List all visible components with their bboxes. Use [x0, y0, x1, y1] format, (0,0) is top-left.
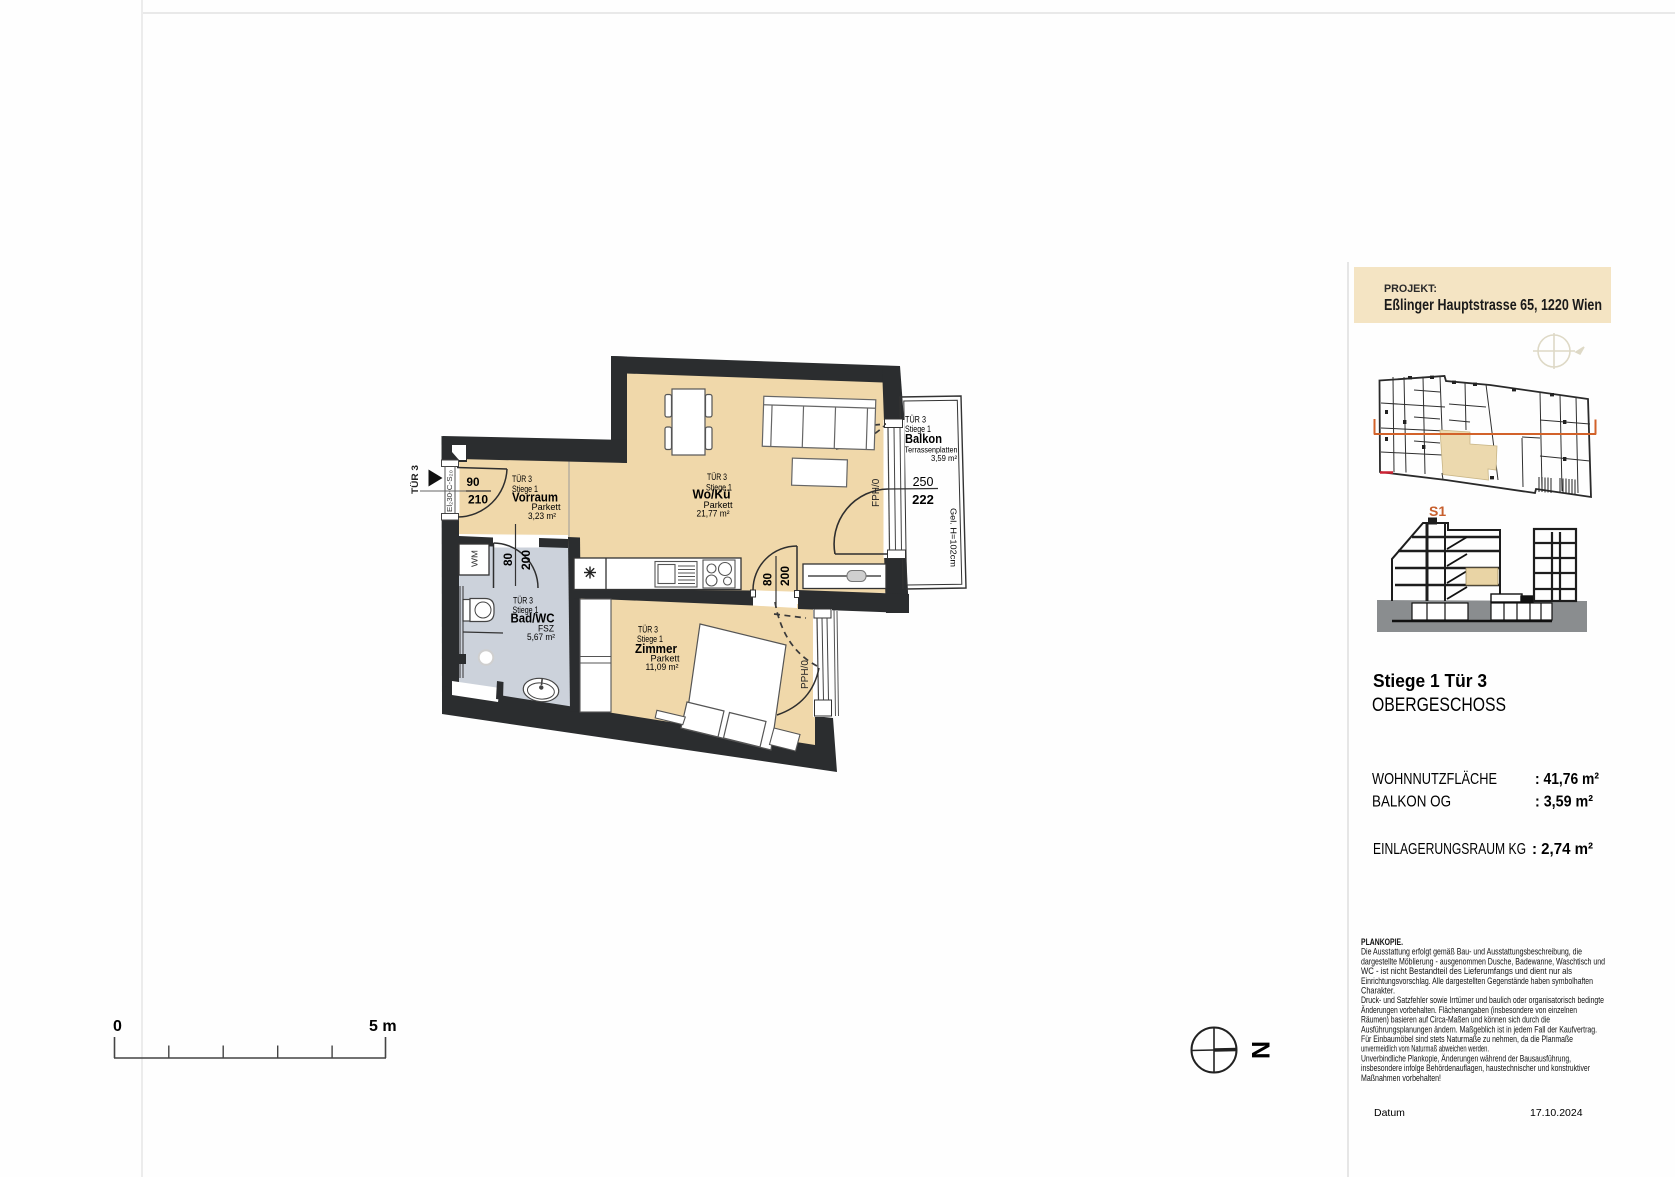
svg-text:210: 210 [468, 493, 488, 507]
svg-text:WC - ist nicht Bestandteil des: WC - ist nicht Bestandteil des Lieferumf… [1361, 966, 1572, 976]
svg-text:Stiege 1 Tür 3: Stiege 1 Tür 3 [1373, 670, 1487, 691]
svg-text:5,67 m²: 5,67 m² [527, 632, 555, 642]
svg-text:: 3,59 m²: : 3,59 m² [1535, 794, 1593, 811]
svg-text:90: 90 [467, 475, 480, 489]
svg-text:Maßnahmen vorbehalten!: Maßnahmen vorbehalten! [1361, 1073, 1441, 1083]
svg-text:Druck- und Satzfehler sowie Ir: Druck- und Satzfehler sowie Irrtümer und… [1361, 995, 1604, 1005]
svg-text:dargestellte Möblierung - ausg: dargestellte Möblierung - ausgenommen Du… [1361, 956, 1605, 966]
svg-text:unvermeidlich vom Naturmaß abw: unvermeidlich vom Naturmaß abweichen wer… [1361, 1044, 1489, 1054]
svg-text:80: 80 [501, 553, 515, 566]
svg-text:Einrichtungsvorschlag. Alle da: Einrichtungsvorschlag. Alle dargestellte… [1361, 976, 1593, 986]
svg-text:0: 0 [113, 1018, 122, 1035]
svg-text:N: N [1246, 1041, 1274, 1059]
svg-text:: 41,76 m²: : 41,76 m² [1535, 771, 1599, 788]
svg-text:Charakter.: Charakter. [1361, 986, 1395, 996]
svg-text:TÜR 3: TÜR 3 [638, 625, 658, 635]
svg-text:5 m: 5 m [369, 1018, 397, 1035]
svg-text:TÜR 3: TÜR 3 [512, 474, 532, 484]
svg-text:EINLAGERUNGSRAUM KG: EINLAGERUNGSRAUM KG [1373, 841, 1526, 858]
svg-text:222: 222 [912, 492, 934, 507]
svg-text:21,77 m²: 21,77 m² [697, 509, 730, 519]
svg-text:OBERGESCHOSS: OBERGESCHOSS [1372, 695, 1506, 716]
svg-text:BALKON OG: BALKON OG [1372, 794, 1451, 811]
svg-text:TÜR 3: TÜR 3 [905, 415, 926, 425]
svg-text:200: 200 [519, 550, 533, 570]
svg-text:PPH/0: PPH/0 [800, 660, 811, 689]
svg-text:Für Einbaumöbel sind stets Nat: Für Einbaumöbel sind stets Naturmaße zu … [1361, 1034, 1573, 1044]
svg-text:17.10.2024: 17.10.2024 [1530, 1107, 1583, 1119]
svg-text:80: 80 [761, 573, 775, 586]
svg-text:Die Ausstattung erfolgt gemäß: Die Ausstattung erfolgt gemäß Bau- und A… [1361, 947, 1582, 957]
svg-text:S1: S1 [1429, 503, 1446, 519]
svg-text:WM: WM [470, 550, 480, 567]
svg-text:Ausführungsplanungen ändern. M: Ausführungsplanungen ändern. Maßgeblich … [1361, 1024, 1597, 1034]
svg-text:250: 250 [913, 475, 934, 489]
svg-text:3,59 m²: 3,59 m² [931, 454, 957, 463]
svg-text:PROJEKT:: PROJEKT: [1384, 283, 1437, 295]
svg-text:200: 200 [778, 566, 792, 586]
svg-text:3,23 m²: 3,23 m² [528, 511, 556, 521]
svg-text:Änderungen vorbehalten. Fläche: Änderungen vorbehalten. Flächenangaben (… [1361, 1005, 1577, 1015]
svg-text:Unverbindliche Plankopie, Ände: Unverbindliche Plankopie, Änderungen wäh… [1361, 1053, 1571, 1063]
svg-text:11,09 m²: 11,09 m² [646, 662, 679, 672]
svg-text:: 2,74 m²: : 2,74 m² [1532, 841, 1593, 858]
svg-text:TÜR 3: TÜR 3 [707, 472, 727, 482]
svg-text:Gel. H=102cm: Gel. H=102cm [949, 508, 959, 567]
svg-text:WOHNNUTZFLÄCHE: WOHNNUTZFLÄCHE [1372, 770, 1497, 788]
svg-text:PLANKOPIE.: PLANKOPIE. [1361, 937, 1403, 947]
svg-text:FPH/0: FPH/0 [871, 478, 882, 507]
svg-text:Balkon: Balkon [905, 432, 942, 446]
svg-text:TÜR 3: TÜR 3 [410, 465, 421, 494]
svg-text:insbesondere infolge Behördena: insbesondere infolge Behördenauflagen, h… [1361, 1063, 1590, 1073]
svg-text:Räumen) basieren auf Circa-Maß: Räumen) basieren auf Circa-Maßen und kön… [1361, 1015, 1550, 1025]
svg-text:Datum: Datum [1374, 1107, 1405, 1119]
svg-text:TÜR 3: TÜR 3 [513, 596, 533, 606]
svg-text:Eßlinger Hauptstrasse 65, 1220: Eßlinger Hauptstrasse 65, 1220 Wien [1384, 297, 1602, 314]
